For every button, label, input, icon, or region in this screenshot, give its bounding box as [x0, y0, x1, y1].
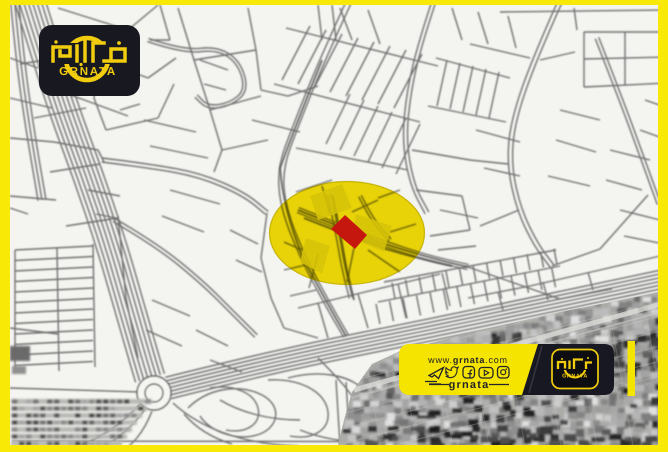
svg-text:GRNATA: GRNATA — [562, 374, 588, 380]
svg-text:grnata: grnata — [449, 379, 490, 391]
svg-text:www.grnata.com: www.grnata.com — [427, 355, 508, 365]
svg-text:GRNATA: GRNATA — [59, 66, 117, 78]
